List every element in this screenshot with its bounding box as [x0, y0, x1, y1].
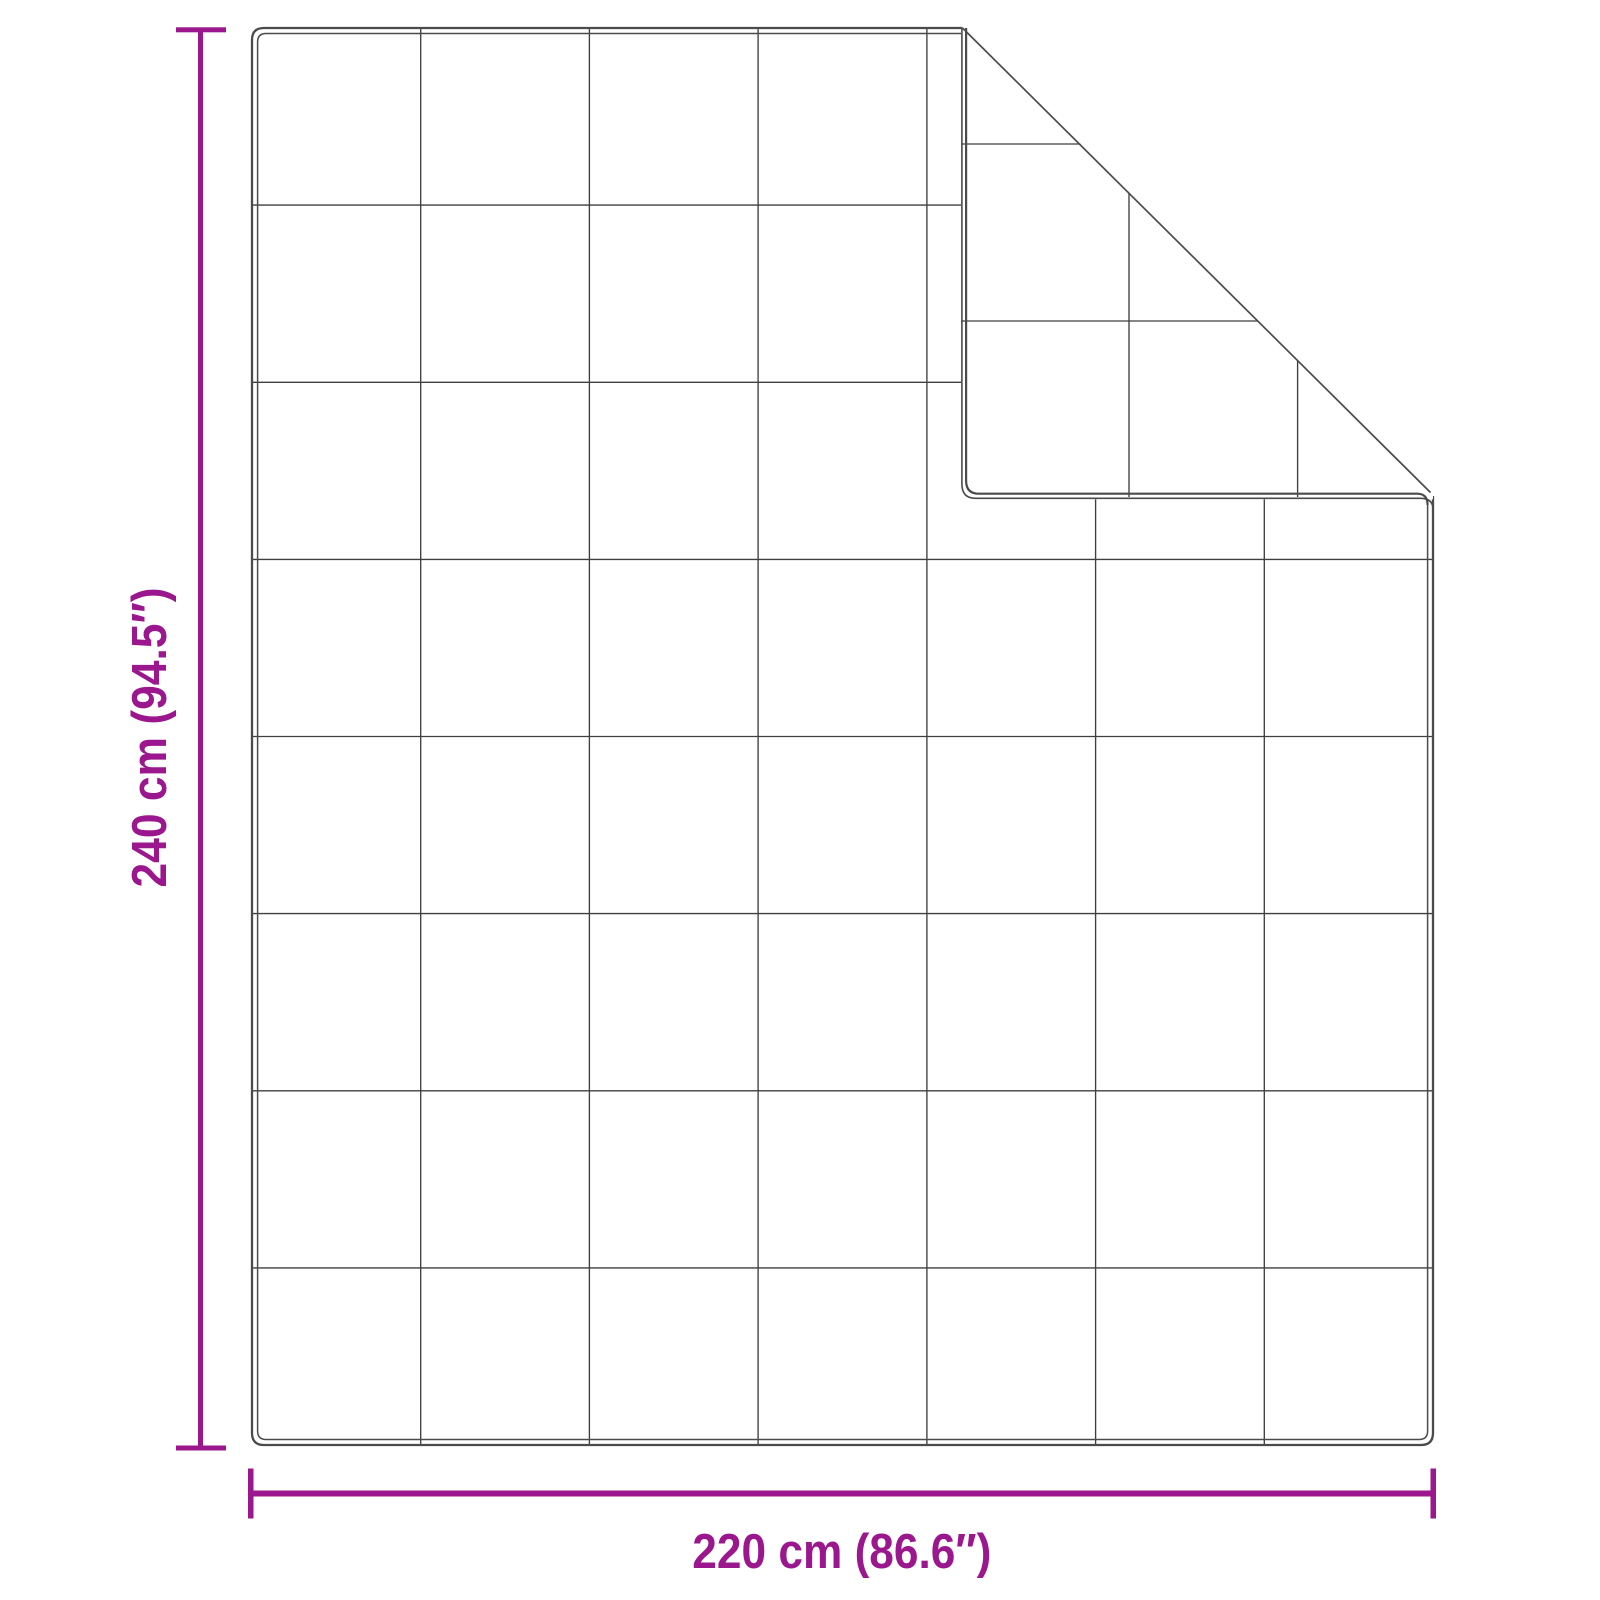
svg-text:240 cm (94.5″): 240 cm (94.5″) — [123, 588, 177, 888]
svg-text:220 cm (86.6″): 220 cm (86.6″) — [692, 1525, 991, 1579]
